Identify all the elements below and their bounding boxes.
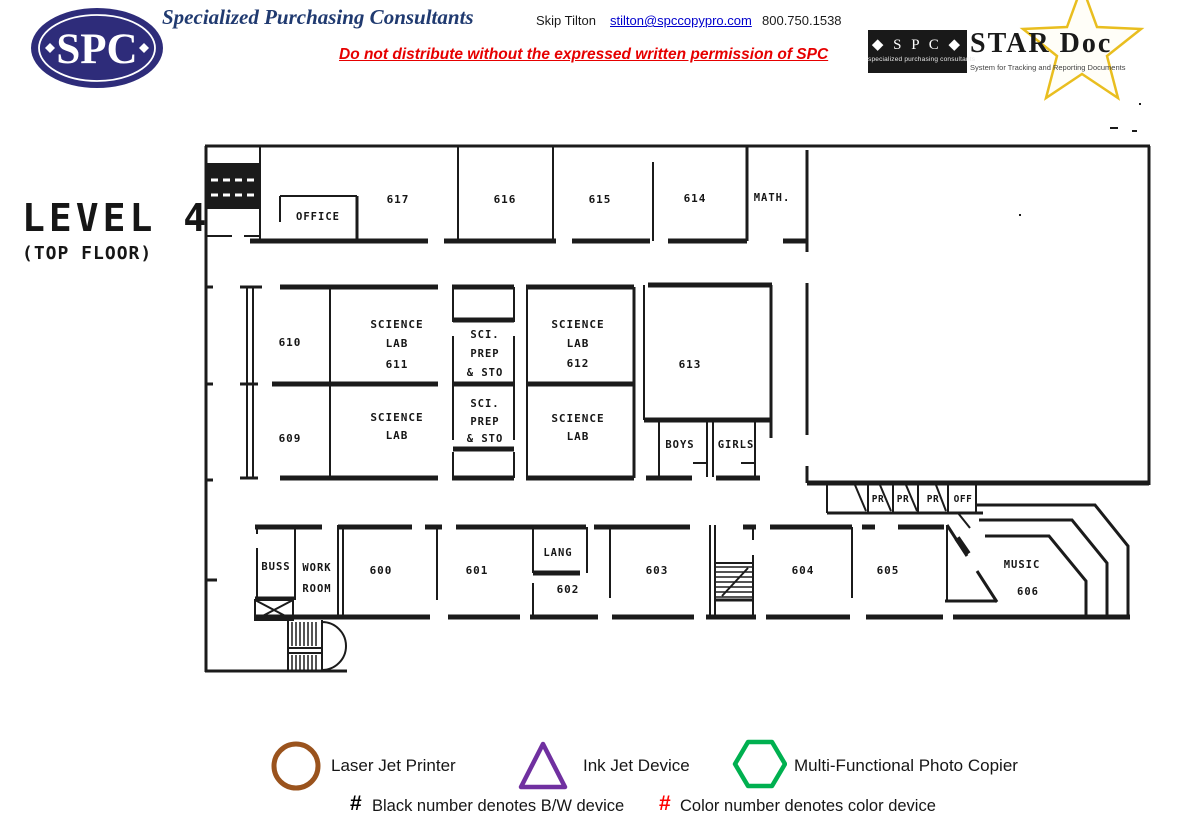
room-label-room: ROOM [302, 583, 331, 595]
room-label-617: 617 [387, 193, 410, 206]
room-label-sci-prep-upper-1: SCI. [470, 329, 499, 341]
room-label-science-lab-611-1: SCIENCE [370, 318, 423, 331]
room-label-science-lab-sw-1: SCIENCE [370, 411, 423, 424]
room-label-610: 610 [279, 336, 302, 349]
page: { "header": { "logo": { "text": "SPC" },… [0, 0, 1197, 824]
stardoc-box-subtitle: specialized purchasing consultants [868, 56, 967, 63]
plan-partitions [206, 104, 1141, 672]
room-label-science-lab-se-1: SCIENCE [551, 412, 604, 425]
room-label-615: 615 [589, 193, 612, 206]
room-label-pr2: PR [897, 494, 909, 505]
room-label-science-lab-612-3: 612 [567, 357, 590, 370]
room-label-pr1: PR [872, 494, 884, 505]
room-label-609: 609 [279, 432, 302, 445]
room-label-sci-prep-lower-1: SCI. [470, 398, 499, 410]
laser-jet-circle-icon [268, 738, 324, 794]
room-label-science-lab-sw-2: LAB [386, 429, 409, 442]
room-label-buss: BUSS [261, 561, 290, 573]
room-label-sci-prep-lower-3: & STO [467, 433, 504, 445]
room-label-office: OFFICE [296, 211, 340, 223]
room-label-lang: LANG [543, 547, 572, 559]
room-label-605: 605 [877, 564, 900, 577]
room-label-601: 601 [466, 564, 489, 577]
stardoc-subtitle: System for Tracking and Reporting Docume… [970, 63, 1126, 72]
room-label-music-2: 606 [1017, 586, 1039, 598]
plan-outer-walls [205, 146, 1150, 672]
spc-logo: SPC [27, 4, 167, 94]
photo-copier-hexagon-icon [729, 737, 787, 793]
room-label-music-1: MUSIC [1004, 559, 1041, 571]
room-label-math: MATH. [754, 192, 791, 204]
spc-logo-text: SPC [56, 26, 137, 73]
stardoc-title: STAR Doc [970, 28, 1112, 60]
room-label-pr3: PR [927, 494, 939, 505]
room-label-science-lab-611-2: LAB [386, 337, 409, 350]
room-label-603: 603 [646, 564, 669, 577]
floor-plan: LEVEL 4 (TOP FLOOR) OFFICE 617 616 615 6… [0, 0, 1197, 824]
stardoc-spc-box: ◆ S P C ◆ specialized purchasing consult… [868, 30, 967, 73]
room-label-616: 616 [494, 193, 517, 206]
room-label-work: WORK [302, 562, 331, 574]
level-title: LEVEL 4 [22, 196, 210, 240]
room-label-science-lab-612-2: LAB [567, 337, 590, 350]
room-label-off: OFF [954, 494, 973, 505]
stardoc-box-title: ◆ S P C ◆ [868, 30, 967, 54]
room-label-science-lab-612-1: SCIENCE [551, 318, 604, 331]
room-label-614: 614 [684, 192, 707, 205]
room-label-boys: BOYS [665, 439, 694, 451]
ink-jet-triangle-icon [515, 738, 571, 794]
room-label-602: 602 [557, 583, 580, 596]
room-label-sci-prep-upper-2: PREP [470, 348, 499, 360]
level-subtitle: (TOP FLOOR) [22, 243, 152, 264]
room-label-604: 604 [792, 564, 815, 577]
room-label-613: 613 [679, 358, 702, 371]
room-label-girls: GIRLS [718, 439, 755, 451]
room-label-sci-prep-upper-3: & STO [467, 367, 504, 379]
room-label-600: 600 [370, 564, 393, 577]
room-label-science-lab-se-2: LAB [567, 430, 590, 443]
stairwell-block [207, 163, 259, 209]
room-label-sci-prep-lower-2: PREP [470, 416, 499, 428]
room-label-science-lab-611-3: 611 [386, 358, 409, 371]
